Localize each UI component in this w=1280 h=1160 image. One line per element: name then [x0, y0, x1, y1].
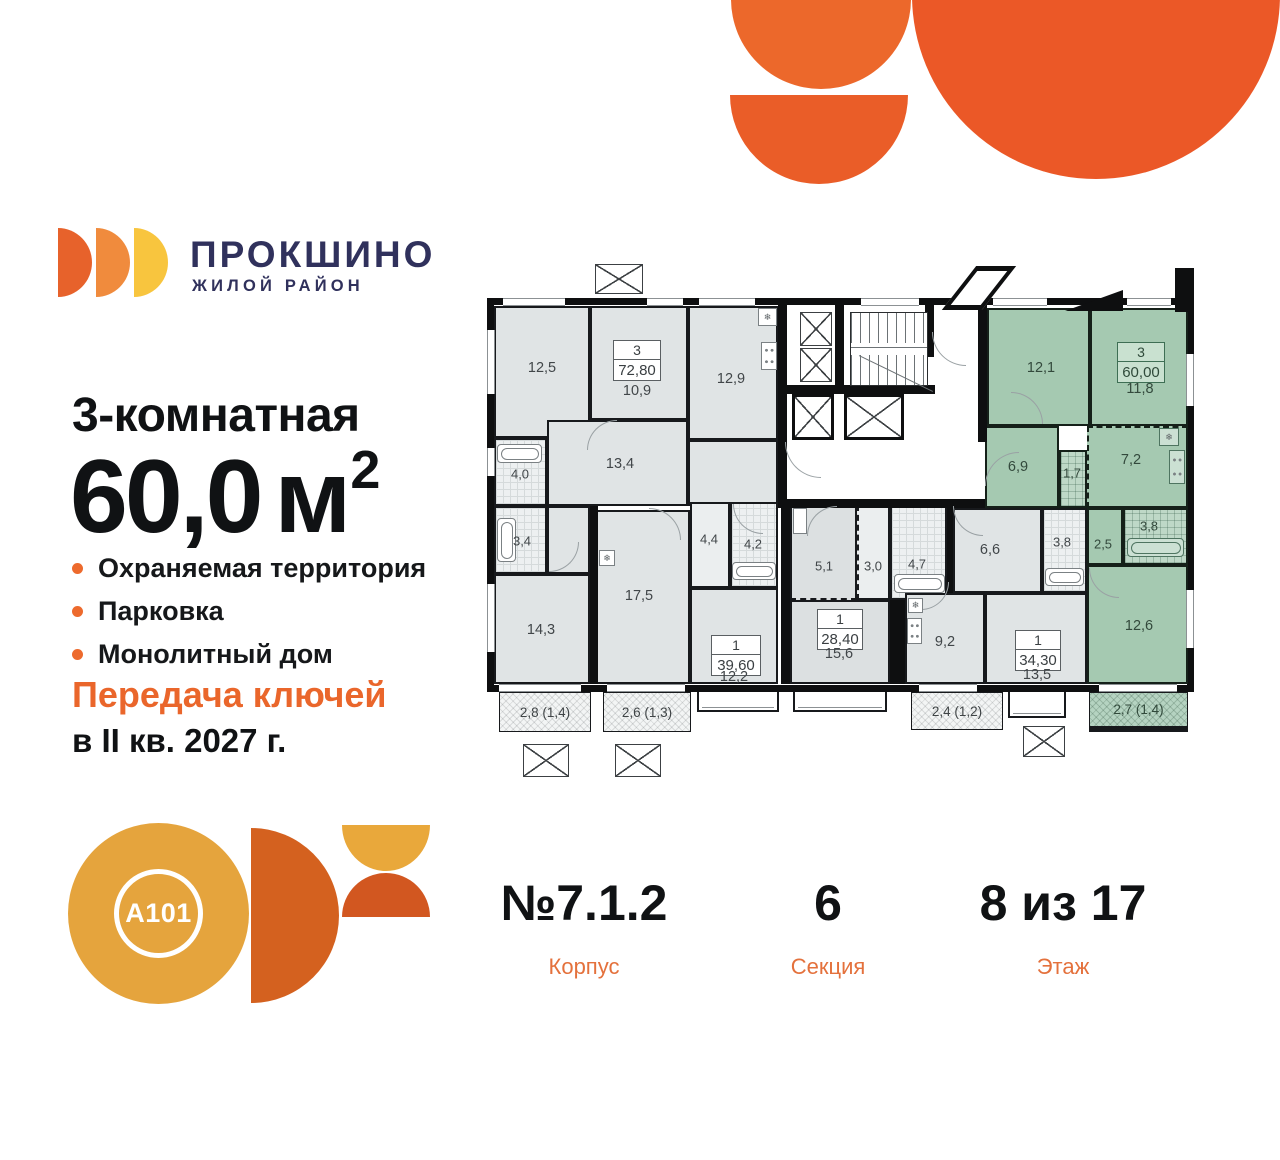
badge-rooms: 1 — [1016, 631, 1060, 650]
room-area-label: 2,5 — [1094, 537, 1112, 552]
window — [1186, 590, 1194, 648]
room-area-label: 4,4 — [700, 532, 718, 547]
room-area-label: 12,6 — [1125, 618, 1153, 634]
window — [487, 448, 495, 476]
wall — [835, 305, 844, 385]
snowflake-glyph: ❄ — [764, 312, 772, 323]
brand-tagline: ЖИЛОЙ РАЙОН — [192, 277, 364, 296]
a101-hourglass-bottom — [342, 873, 430, 917]
badge-area: 60,00 — [1118, 362, 1164, 382]
area-value: 60,0 — [70, 439, 260, 555]
wall — [781, 506, 790, 684]
deco-circle-small — [731, 0, 911, 89]
window — [1127, 298, 1171, 306]
fridge-icon: ❄ — [599, 550, 615, 566]
window — [861, 298, 919, 306]
area-sup: 2 — [350, 440, 380, 500]
feature-label: Охраняемая территория — [98, 553, 426, 584]
stairwell — [850, 312, 928, 386]
room-area-label: 14,3 — [527, 622, 555, 638]
snowflake-glyph: ❄ — [603, 553, 611, 564]
stove-icon — [907, 618, 922, 644]
hall-3-0 — [857, 505, 890, 600]
room-area-label: 13,4 — [606, 456, 634, 472]
badge-rooms: 3 — [614, 341, 660, 360]
feature-label: Парковка — [98, 596, 224, 627]
brand-logo-mark — [96, 228, 130, 297]
deco-halfcircle — [730, 95, 908, 184]
bullet-icon — [72, 606, 83, 617]
building-number-value: №7.1.2 — [464, 874, 704, 932]
area-unit: м — [274, 439, 350, 555]
window — [1099, 684, 1177, 692]
room-area-label: 3,4 — [513, 534, 531, 549]
snowflake-glyph: ❄ — [1165, 432, 1173, 443]
ac-unit-box — [595, 264, 643, 294]
elevator-shaft — [792, 394, 834, 440]
bathtub — [732, 562, 776, 580]
hall-13-4-ext — [688, 440, 778, 506]
balcony-2-7-selected: 2,7 (1,4) — [1089, 692, 1188, 732]
apartment-badge-34-30[interactable]: 1 34,30 — [1015, 630, 1061, 671]
room-area-label: 17,5 — [625, 588, 653, 604]
brand-logo-mark — [58, 228, 92, 297]
room-area-label: 4,7 — [908, 557, 926, 572]
balcony-label: 2,6 (1,3) — [622, 705, 672, 720]
window-bay — [1008, 692, 1066, 718]
stair-landing-line — [851, 347, 927, 348]
bathtub — [1045, 568, 1084, 586]
balcony-2-8: 2,8 (1,4) — [499, 692, 591, 732]
wall — [778, 298, 787, 508]
floor-value: 8 из 17 — [943, 874, 1183, 932]
window-bay — [697, 692, 779, 712]
room-area-label: 12,5 — [528, 360, 556, 376]
stove-icon — [761, 342, 777, 370]
stair-flight — [851, 313, 927, 343]
room-area-label: 9,2 — [935, 634, 955, 650]
a101-halfdisc — [251, 828, 339, 1003]
room-area-label: 5,1 — [815, 559, 833, 574]
features-list: Охраняемая территория Парковка Монолитны… — [72, 547, 426, 676]
building-number-label: Корпус — [464, 954, 704, 980]
window — [919, 684, 977, 692]
deco-circle-large — [912, 0, 1280, 179]
bullet-icon — [72, 649, 83, 660]
room-area-label: 6,6 — [980, 542, 1000, 558]
room-area-label: 11,8 — [1126, 381, 1153, 397]
balcony-label: 2,4 (1,2) — [932, 704, 982, 719]
badge-rooms: 3 — [1118, 343, 1164, 362]
ac-unit-box — [1023, 726, 1065, 757]
ac-unit-box — [615, 744, 661, 777]
a101-ring: A101 — [114, 869, 203, 958]
vent-shaft — [800, 348, 832, 382]
feature-item: Охраняемая территория — [72, 547, 426, 590]
apartment-badge-28-40[interactable]: 1 28,40 — [817, 609, 863, 650]
apartment-badge-72-80[interactable]: 3 72,80 — [613, 340, 661, 381]
room-area-label: 7,2 — [1121, 452, 1141, 468]
elevator-shaft — [844, 394, 904, 440]
wall — [787, 385, 935, 394]
room-area-label: 13,5 — [1023, 667, 1051, 683]
balcony-label: 2,7 (1,4) — [1113, 702, 1163, 717]
floor-plan: 2,8 (1,4) 2,6 (1,3) 2,4 (1,2) 2,7 (1,4) … — [487, 292, 1194, 792]
brand-name: ПРОКШИНО — [190, 234, 435, 276]
kitchen-sink — [793, 508, 807, 534]
wall — [590, 506, 598, 684]
fridge-icon: ❄ — [758, 308, 777, 326]
snowflake-glyph: ❄ — [912, 600, 920, 611]
balcony-label: 2,8 (1,4) — [520, 705, 570, 720]
balcony-2-6: 2,6 (1,3) — [603, 692, 691, 732]
window-bay — [793, 692, 887, 712]
feature-item: Парковка — [72, 590, 426, 633]
window — [647, 298, 683, 306]
fridge-icon: ❄ — [908, 598, 923, 613]
room-area-label: 12,9 — [717, 371, 745, 387]
bullet-icon — [72, 563, 83, 574]
window — [487, 584, 495, 652]
wall — [978, 298, 987, 442]
window — [993, 298, 1047, 306]
bathtub — [497, 444, 542, 463]
window — [503, 298, 565, 306]
section-value: 6 — [708, 874, 948, 932]
balcony-2-4: 2,4 (1,2) — [911, 692, 1003, 730]
room-area-label: 10,9 — [623, 383, 651, 399]
room-area-label: 12,1 — [1027, 360, 1055, 376]
room-area-label: 1,7 — [1063, 466, 1081, 481]
brand-logo-mark — [134, 228, 168, 297]
fridge-icon: ❄ — [1159, 428, 1179, 446]
bathtub — [894, 574, 945, 593]
feature-item: Монолитный дом — [72, 633, 426, 676]
badge-area: 72,80 — [614, 360, 660, 380]
apartment-area-title: 60,0м2 — [70, 438, 380, 557]
vent-shaft — [800, 312, 832, 346]
window — [499, 684, 581, 692]
feature-label: Монолитный дом — [98, 639, 333, 670]
ac-unit-box — [523, 744, 569, 777]
room-area-label: 12,2 — [720, 669, 748, 685]
room-area-label: 4,0 — [511, 467, 529, 482]
keys-handover-title: Передача ключей — [72, 674, 387, 716]
window — [1186, 354, 1194, 406]
stove-icon — [1169, 450, 1185, 484]
room-area-label: 6,9 — [1008, 459, 1028, 475]
apartment-type-title: 3-комнатная — [72, 388, 360, 443]
room-area-label: 3,8 — [1053, 535, 1071, 550]
badge-rooms: 1 — [818, 610, 862, 629]
a101-hourglass-top — [342, 825, 430, 871]
room-area-label: 4,2 — [744, 537, 762, 552]
keys-handover-date: в II кв. 2027 г. — [72, 722, 286, 760]
window — [607, 684, 685, 692]
wall — [890, 600, 905, 684]
section-label: Секция — [708, 954, 948, 980]
room-area-label: 3,0 — [864, 559, 882, 574]
room-area-label: 3,8 — [1140, 519, 1158, 534]
badge-rooms: 1 — [712, 636, 760, 655]
a101-label: A101 — [125, 898, 192, 929]
window — [699, 298, 755, 306]
wall — [947, 508, 953, 593]
bathtub — [1127, 538, 1184, 557]
floor-label: Этаж — [943, 954, 1183, 980]
room-area-label: 15,6 — [825, 646, 853, 662]
apartment-badge-60-00-selected[interactable]: 3 60,00 — [1117, 342, 1165, 383]
wall-top-right-pillar — [1175, 268, 1194, 312]
window — [487, 330, 495, 394]
